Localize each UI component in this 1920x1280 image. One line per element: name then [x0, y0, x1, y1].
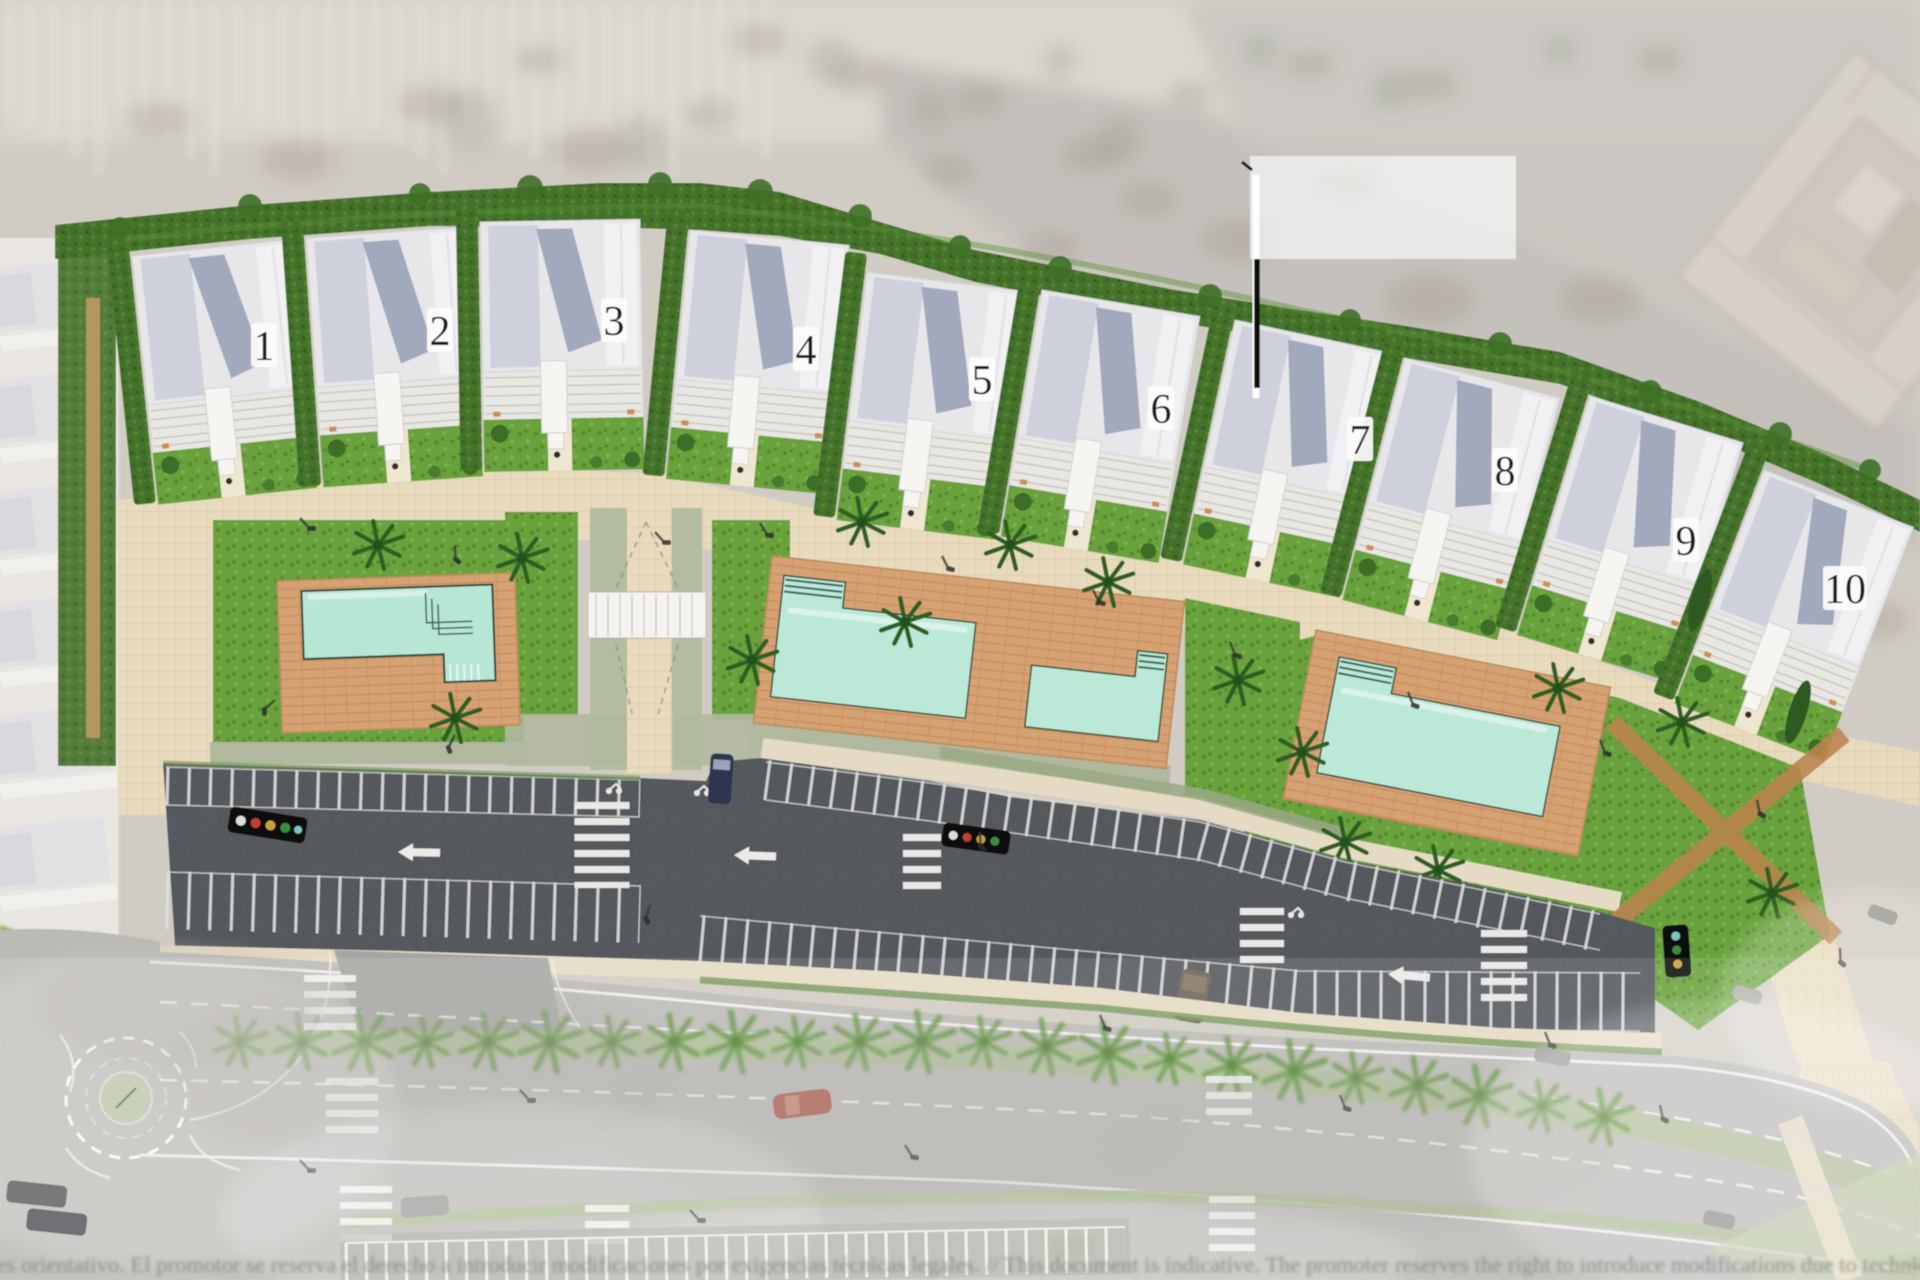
svg-text:5: 5 [972, 358, 993, 404]
svg-text:3: 3 [604, 299, 625, 345]
svg-text:9: 9 [1676, 519, 1697, 565]
svg-text:10: 10 [1824, 567, 1866, 613]
svg-text:8: 8 [1495, 449, 1516, 495]
svg-text:2: 2 [430, 309, 451, 355]
svg-text:1: 1 [254, 324, 275, 370]
svg-text:6: 6 [1151, 387, 1172, 433]
svg-text:4: 4 [796, 328, 817, 374]
svg-text:nto es orientativo. El promoto: nto es orientativo. El promotor se reser… [0, 1252, 1920, 1277]
svg-text:7: 7 [1350, 418, 1371, 464]
